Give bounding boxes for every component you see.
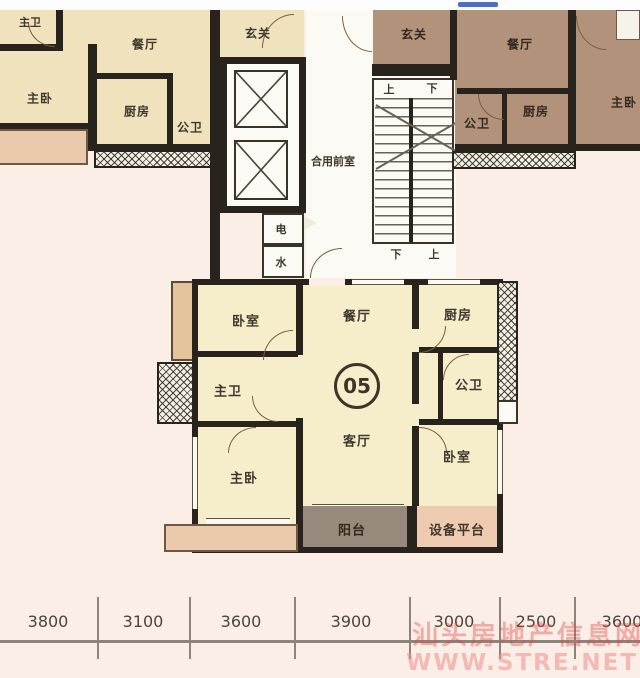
room-label-master-bed: 主卧	[230, 468, 258, 487]
room-label-living: 客厅	[343, 431, 371, 450]
stair-treads	[413, 98, 452, 242]
room-label-kitchen: 厨房	[523, 103, 549, 120]
stair-label-up: 上	[429, 246, 440, 262]
dimension-value: 3900	[331, 612, 372, 631]
room-label-kitchen: 厨房	[444, 305, 472, 324]
unit05-ac-platform-right	[497, 281, 518, 403]
room-label-bath: 公卫	[177, 119, 203, 136]
room-label-bath: 公卫	[464, 115, 490, 132]
room-label-dining: 餐厅	[343, 306, 371, 325]
wall	[296, 285, 303, 355]
dimension-value: 3600	[221, 612, 262, 631]
wall	[419, 419, 499, 425]
room-label-master-bath: 主卫	[19, 14, 41, 30]
room-label-equipment: 设备平台	[429, 520, 485, 539]
stair-label-up: 上	[384, 81, 395, 97]
room-label-master-bed: 主卧	[27, 90, 53, 107]
left-unit-window-sill	[94, 150, 212, 168]
dimension-value: 3100	[123, 612, 164, 631]
room-label-entry-left: 玄关	[245, 25, 271, 42]
unit05-bay-window	[171, 281, 194, 361]
top-blue-indicator	[458, 2, 498, 7]
right-unit-closet	[616, 10, 640, 40]
room-label-bath: 公卫	[455, 375, 483, 394]
label-water: 水	[276, 254, 287, 270]
watermark-site-name: 汕头房地产信息网	[412, 615, 640, 652]
unit05-door-opening	[309, 278, 345, 286]
window	[497, 430, 503, 494]
unit-number-badge: 05	[334, 363, 380, 409]
room-label-dining: 餐厅	[507, 36, 533, 53]
wall	[198, 421, 298, 427]
elevator-2	[234, 140, 288, 200]
unit05-master-balcony	[164, 524, 298, 552]
core-left-wall	[210, 10, 220, 282]
room-label-bedroom: 卧室	[443, 447, 471, 466]
left-unit-balcony	[0, 129, 88, 165]
room-label-bedroom: 卧室	[232, 311, 260, 330]
wall	[455, 144, 640, 151]
dimension-tick	[97, 597, 99, 659]
wall	[167, 79, 173, 148]
room-label-master-bed: 主卧	[611, 94, 637, 111]
label-electricity: 电	[276, 221, 287, 237]
window	[352, 279, 404, 285]
unit05-ledge-right	[497, 400, 518, 424]
room-label-kitchen: 厨房	[124, 103, 150, 120]
stair-divider	[409, 98, 413, 242]
wall	[412, 352, 419, 404]
room-label-dining: 餐厅	[132, 36, 158, 53]
stair-label-down: 下	[427, 80, 438, 96]
wall	[97, 73, 173, 79]
room-label-master-bath: 主卫	[214, 381, 242, 400]
wall	[412, 285, 419, 329]
wall	[450, 10, 457, 80]
unit05-ac-platform-left	[157, 362, 195, 424]
dimension-tick	[294, 597, 296, 659]
floorplan-image: 主卫 餐厅 主卧 厨房 公卫 玄关 合用前室 电 水 上 下 下 上 玄关 餐厅…	[0, 0, 640, 678]
wall	[372, 64, 456, 76]
window	[192, 437, 198, 509]
wall	[88, 44, 97, 148]
wall	[438, 353, 443, 419]
stair-label-down: 下	[391, 246, 402, 262]
wall	[568, 10, 576, 147]
window	[428, 279, 480, 285]
wall	[457, 88, 569, 94]
shaft-flap	[304, 216, 317, 230]
elevator-x-icon	[236, 72, 286, 126]
elevator-x-icon	[236, 142, 286, 198]
watermark-url: WWW.STRE.NET	[406, 650, 638, 676]
elevator-1	[234, 70, 288, 128]
dimension-value: 3800	[28, 612, 69, 631]
wall	[56, 10, 63, 51]
room-label-entry-right: 玄关	[401, 26, 427, 43]
top-margin	[0, 0, 640, 10]
room-label-balcony: 阳台	[338, 520, 366, 539]
dimension-tick	[189, 597, 191, 659]
right-unit-window-sill	[452, 151, 576, 169]
room-label-lobby: 合用前室	[311, 153, 355, 169]
